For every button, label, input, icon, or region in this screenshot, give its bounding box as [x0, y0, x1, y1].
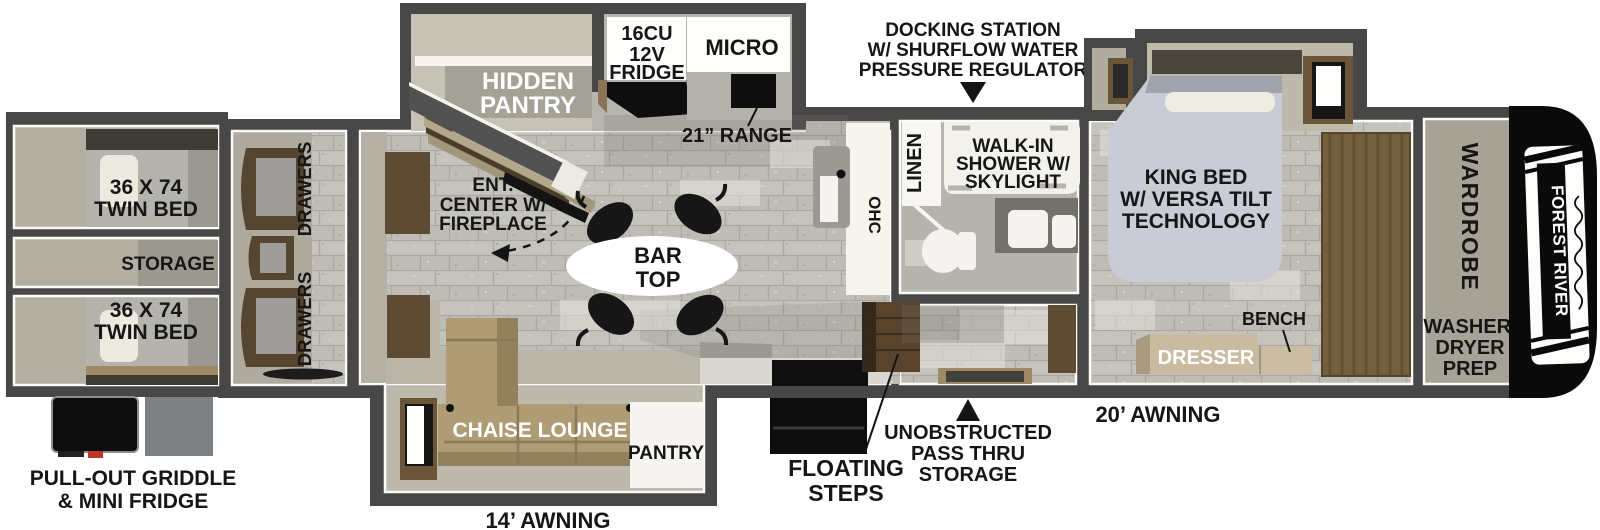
- svg-text:DOCKING STATION: DOCKING STATION: [885, 20, 1061, 41]
- svg-text:HIDDEN: HIDDEN: [482, 68, 574, 95]
- svg-text:DRYER: DRYER: [1435, 337, 1505, 359]
- svg-text:PASS THRU: PASS THRU: [911, 443, 1025, 465]
- svg-text:MICRO: MICRO: [705, 35, 778, 60]
- svg-text:36 X 74: 36 X 74: [110, 176, 183, 199]
- svg-text:CENTER W/: CENTER W/: [440, 195, 547, 216]
- svg-text:WASHER/: WASHER/: [1423, 316, 1517, 338]
- svg-text:20’ AWNING: 20’ AWNING: [1095, 402, 1220, 427]
- svg-text:W/ VERSA TILT: W/ VERSA TILT: [1120, 188, 1272, 211]
- svg-text:TWIN BED: TWIN BED: [94, 321, 198, 344]
- svg-text:PANTRY: PANTRY: [628, 443, 704, 464]
- svg-text:DRAWERS: DRAWERS: [294, 142, 315, 237]
- svg-text:16CU: 16CU: [621, 23, 672, 45]
- svg-text:KING BED: KING BED: [1145, 166, 1248, 189]
- svg-text:36 X 74: 36 X 74: [110, 299, 183, 322]
- svg-text:21” RANGE: 21” RANGE: [682, 125, 792, 147]
- svg-text:UNOBSTRUCTED: UNOBSTRUCTED: [884, 422, 1052, 444]
- svg-text:OHC: OHC: [865, 196, 884, 234]
- svg-text:BAR: BAR: [634, 243, 682, 268]
- svg-text:TOP: TOP: [636, 267, 681, 292]
- svg-text:FIREPLACE: FIREPLACE: [439, 214, 547, 235]
- svg-text:SKYLIGHT: SKYLIGHT: [965, 172, 1061, 193]
- svg-text:LINEN: LINEN: [904, 133, 926, 193]
- svg-text:14’ AWNING: 14’ AWNING: [485, 508, 610, 530]
- svg-text:DRESSER: DRESSER: [1158, 347, 1255, 369]
- svg-text:TWIN BED: TWIN BED: [94, 198, 198, 221]
- svg-text:PRESSURE REGULATOR: PRESSURE REGULATOR: [859, 60, 1088, 81]
- svg-text:STORAGE: STORAGE: [919, 464, 1018, 486]
- svg-text:TECHNOLOGY: TECHNOLOGY: [1122, 210, 1270, 233]
- svg-text:& MINI FRIDGE: & MINI FRIDGE: [58, 490, 209, 513]
- svg-text:STEPS: STEPS: [808, 480, 883, 506]
- svg-text:ENT.: ENT.: [472, 175, 513, 196]
- svg-text:PULL-OUT GRIDDLE: PULL-OUT GRIDDLE: [30, 467, 236, 490]
- svg-text:FRIDGE: FRIDGE: [609, 62, 685, 84]
- svg-text:W/ SHURFLOW WATER: W/ SHURFLOW WATER: [868, 40, 1079, 61]
- svg-text:WARDROBE: WARDROBE: [1457, 143, 1483, 292]
- svg-text:BENCH: BENCH: [1242, 309, 1306, 329]
- svg-text:STORAGE: STORAGE: [121, 254, 215, 275]
- svg-text:PREP: PREP: [1443, 358, 1497, 380]
- svg-text:PANTRY: PANTRY: [480, 92, 576, 119]
- svg-text:FLOATING: FLOATING: [788, 455, 904, 481]
- svg-text:DRAWERS: DRAWERS: [294, 272, 315, 367]
- svg-text:CHAISE LOUNGE: CHAISE LOUNGE: [452, 419, 627, 442]
